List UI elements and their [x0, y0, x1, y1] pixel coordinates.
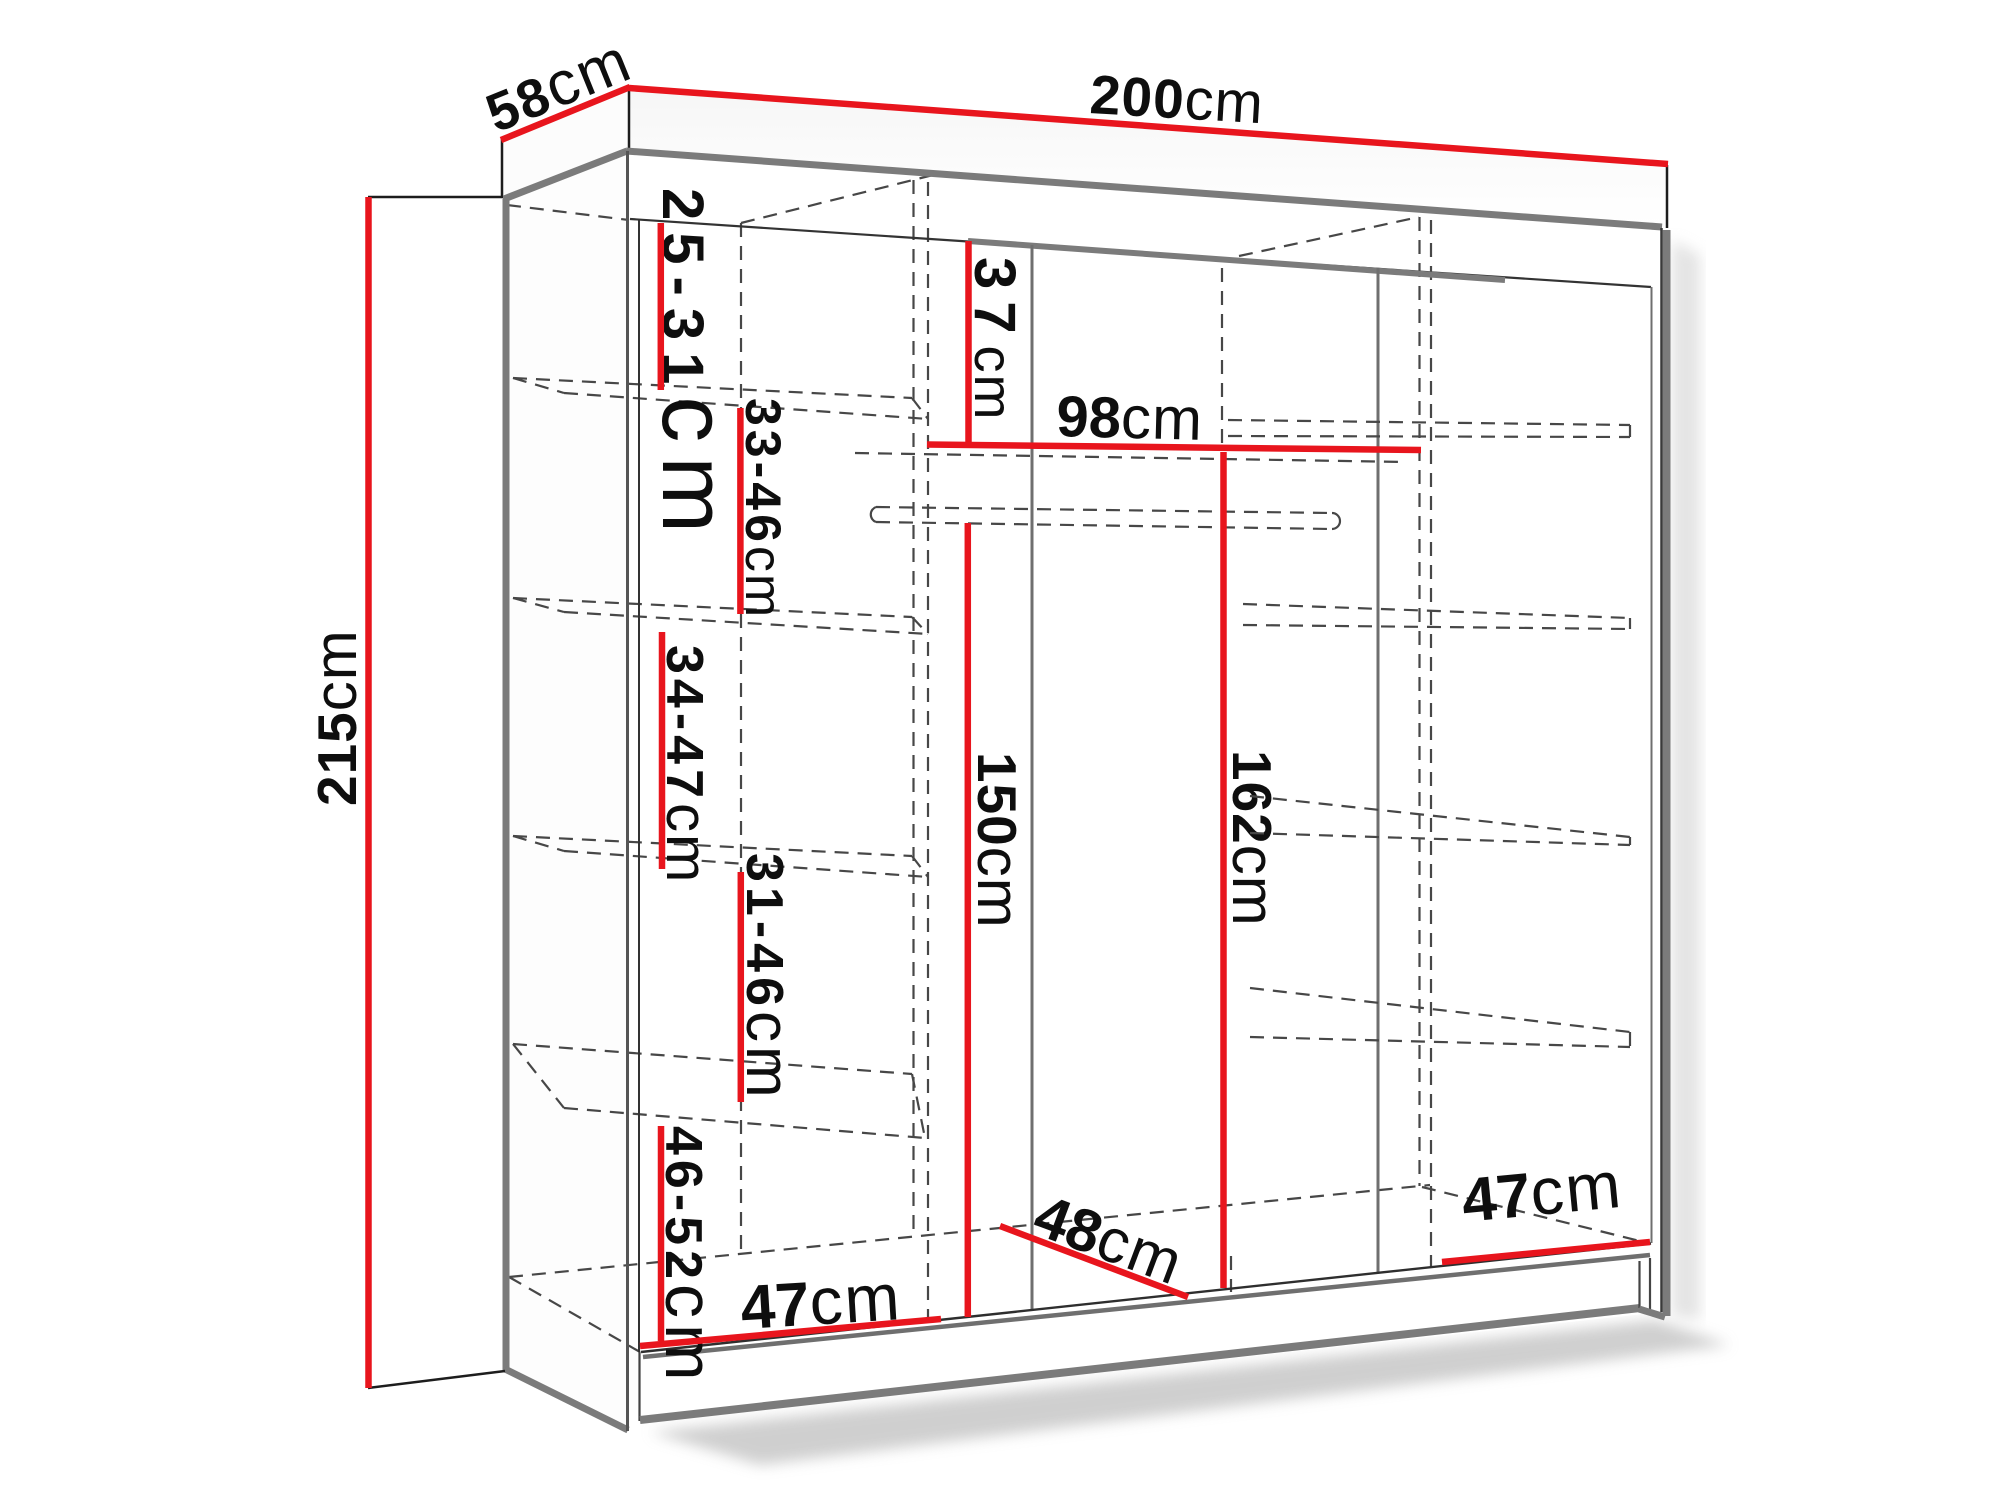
svg-text:150cm: 150cm — [965, 752, 1032, 929]
svg-text:162cm: 162cm — [1220, 750, 1287, 927]
svg-text:215cm: 215cm — [302, 629, 369, 806]
svg-text:98cm: 98cm — [1056, 382, 1204, 453]
